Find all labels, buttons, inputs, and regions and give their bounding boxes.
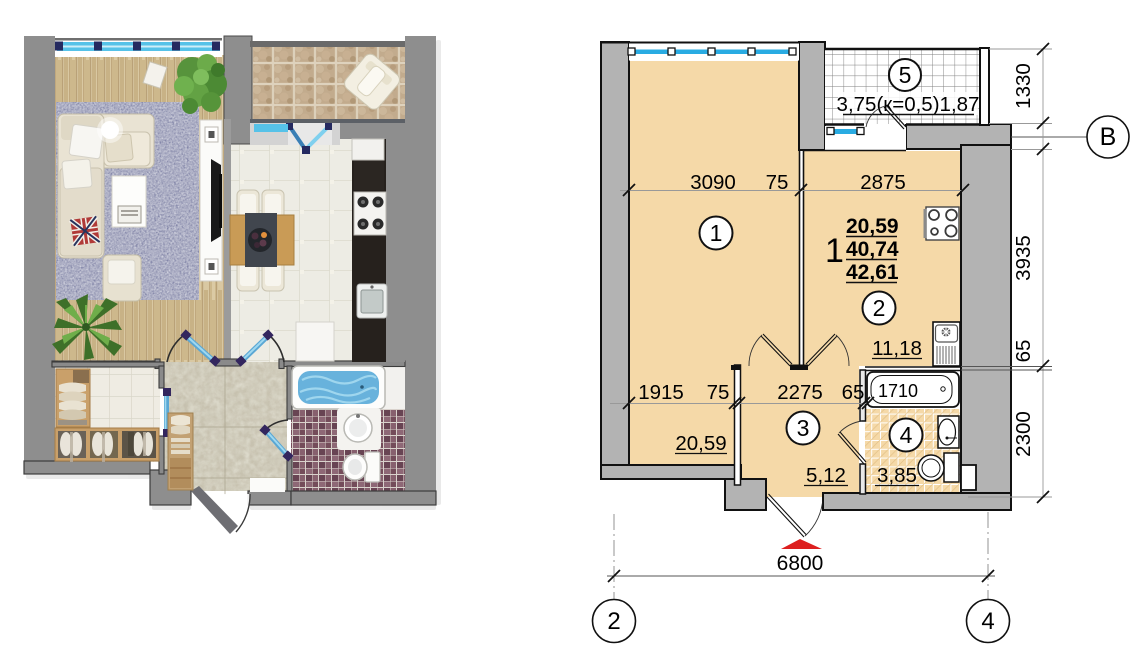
svg-text:2: 2 — [607, 608, 620, 635]
svg-text:40,74: 40,74 — [846, 238, 899, 261]
svg-text:1: 1 — [710, 220, 723, 246]
svg-text:B: B — [1100, 123, 1117, 151]
svg-text:42,61: 42,61 — [846, 261, 899, 284]
svg-text:1: 1 — [825, 232, 844, 270]
svg-text:20,59: 20,59 — [675, 432, 726, 455]
svg-text:5,12: 5,12 — [806, 464, 846, 487]
svg-text:6800: 6800 — [777, 552, 824, 575]
svg-text:1915: 1915 — [638, 381, 684, 404]
svg-text:75: 75 — [707, 381, 730, 404]
svg-text:65: 65 — [1012, 340, 1035, 363]
svg-text:4: 4 — [981, 608, 994, 635]
svg-text:3935: 3935 — [1012, 235, 1035, 281]
svg-text:11,18: 11,18 — [872, 337, 922, 360]
svg-text:3: 3 — [797, 415, 810, 441]
svg-text:2: 2 — [873, 295, 886, 321]
svg-text:4: 4 — [900, 422, 913, 448]
svg-text:1330: 1330 — [1012, 63, 1035, 109]
svg-text:65: 65 — [842, 381, 865, 404]
svg-text:5: 5 — [899, 62, 912, 88]
svg-text:2275: 2275 — [777, 381, 823, 404]
svg-text:3,85: 3,85 — [877, 464, 917, 487]
svg-text:20,59: 20,59 — [846, 215, 899, 238]
svg-text:1710: 1710 — [878, 381, 918, 401]
svg-text:3,75(к=0,5)1,87: 3,75(к=0,5)1,87 — [837, 93, 980, 116]
svg-text:2300: 2300 — [1012, 411, 1035, 457]
